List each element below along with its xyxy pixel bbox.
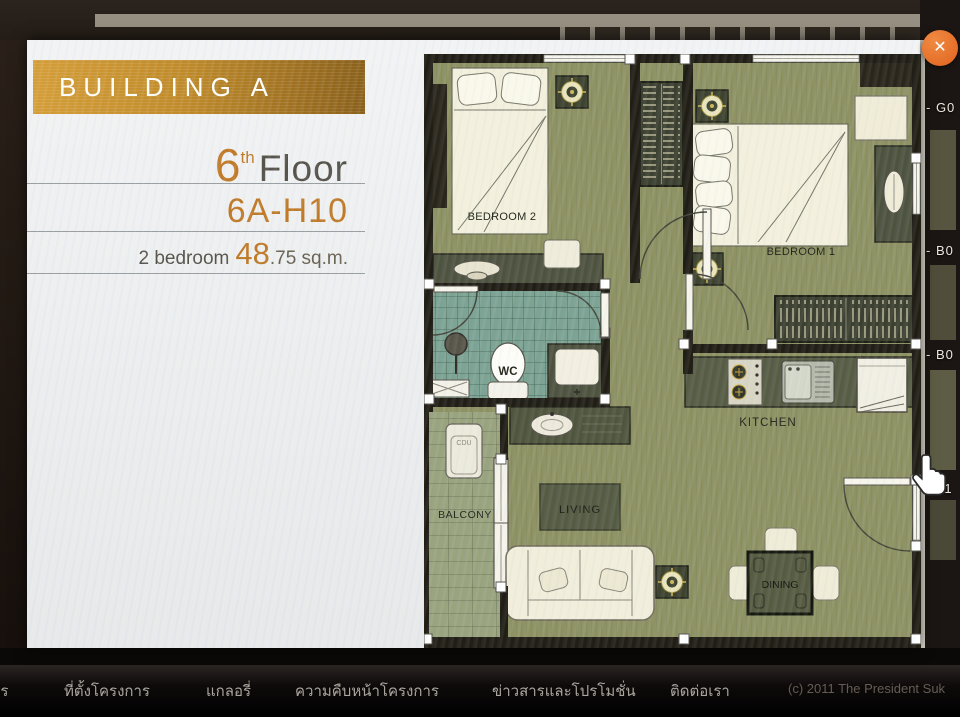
unit-spec: 2 bedroom48.75 sq.m. <box>27 238 365 274</box>
building-banner-title: BUILDING A <box>33 60 365 114</box>
nav-item-progress[interactable]: ความคืบหน้าโครงการ <box>295 679 439 703</box>
background-plan-fragment <box>930 130 956 230</box>
nav-item-gallery[interactable]: แกลอรี่ <box>206 679 251 703</box>
refrigerator <box>857 358 907 412</box>
background-left-strip <box>0 40 27 648</box>
screen: - G0 - B0 - B0 H1 BUILDING A 6thFloor 6A… <box>0 0 960 717</box>
bedroom1-side-table <box>875 146 913 242</box>
unit-info-panel: 6thFloor 6A-H10 2 bedroom48.75 sq.m. <box>27 136 365 274</box>
copyright-text: (c) 2011 The President Suk <box>788 681 945 696</box>
sofa <box>506 546 654 620</box>
balcony-label: BALCONY <box>438 509 492 521</box>
floor-number: 6 <box>215 139 241 191</box>
floorplan-popup: BUILDING A 6thFloor 6A-H10 2 bedroom48.7… <box>27 40 920 648</box>
unit-tag-b0-1[interactable]: - B0 <box>926 243 954 258</box>
hall-closet <box>640 82 683 186</box>
nav-item-news[interactable]: ข่าวสารและโปรโมชั่น <box>492 679 636 703</box>
cursor-pointer <box>910 452 954 502</box>
service-shaft <box>860 63 912 87</box>
nav-item-partial[interactable]: าร <box>0 679 8 703</box>
bedroom2-bed <box>452 68 548 234</box>
bedroom1-cabinet <box>855 96 907 140</box>
nav-item-location[interactable]: ที่ตั้งโครงการ <box>64 679 150 703</box>
area-integer: 48 <box>235 236 269 271</box>
hall-basin-counter <box>510 407 630 444</box>
bedroom1-label: BEDROOM 1 <box>767 246 836 258</box>
wc-label: WC <box>498 366 517 378</box>
bathroom-vanity <box>548 344 606 398</box>
unit-tag-g0[interactable]: - G0 <box>926 100 955 115</box>
background-plan-fragment <box>930 265 956 340</box>
background-plan-fragment <box>930 500 956 560</box>
building-window-row <box>560 27 925 40</box>
close-button[interactable]: ✕ <box>922 30 958 66</box>
bedroom-count: 2 bedroom <box>139 248 230 269</box>
cdu-unit <box>446 424 482 478</box>
nav-item-contact[interactable]: ติดต่อเรา <box>670 679 730 703</box>
service-shaft <box>433 84 447 208</box>
kitchen-label: KITCHEN <box>739 417 796 429</box>
living-label: LIVING <box>559 504 601 516</box>
floor-title: 6thFloor <box>27 136 365 184</box>
cdu-label: CDU <box>456 440 471 447</box>
building-roofline <box>95 14 925 27</box>
background-building-photo-right <box>920 0 960 660</box>
background-building-photo-top <box>0 0 960 40</box>
area-unit-label: sq.m. <box>302 248 348 269</box>
area-fraction: .75 <box>270 248 296 269</box>
unit-code: 6A-H10 <box>27 192 365 232</box>
floor-suffix: th <box>241 148 255 167</box>
floor-word: Floor <box>259 148 348 189</box>
unit-tag-b0-2[interactable]: - B0 <box>926 347 954 362</box>
floorplan-drawing: BEDROOM 2 BEDROOM 1 WC KITCHEN LIVING DI… <box>424 54 921 648</box>
building-banner: BUILDING A <box>33 60 365 114</box>
background-bottom-gap <box>0 648 960 665</box>
dining-label: DINING <box>762 579 799 591</box>
bedroom1-wardrobe <box>775 296 918 342</box>
bottom-nav: าร ที่ตั้งโครงการ แกลอรี่ ความคืบหน้าโคร… <box>0 665 960 717</box>
bedroom1-bed <box>690 124 848 246</box>
bedroom2-label: BEDROOM 2 <box>468 211 537 223</box>
